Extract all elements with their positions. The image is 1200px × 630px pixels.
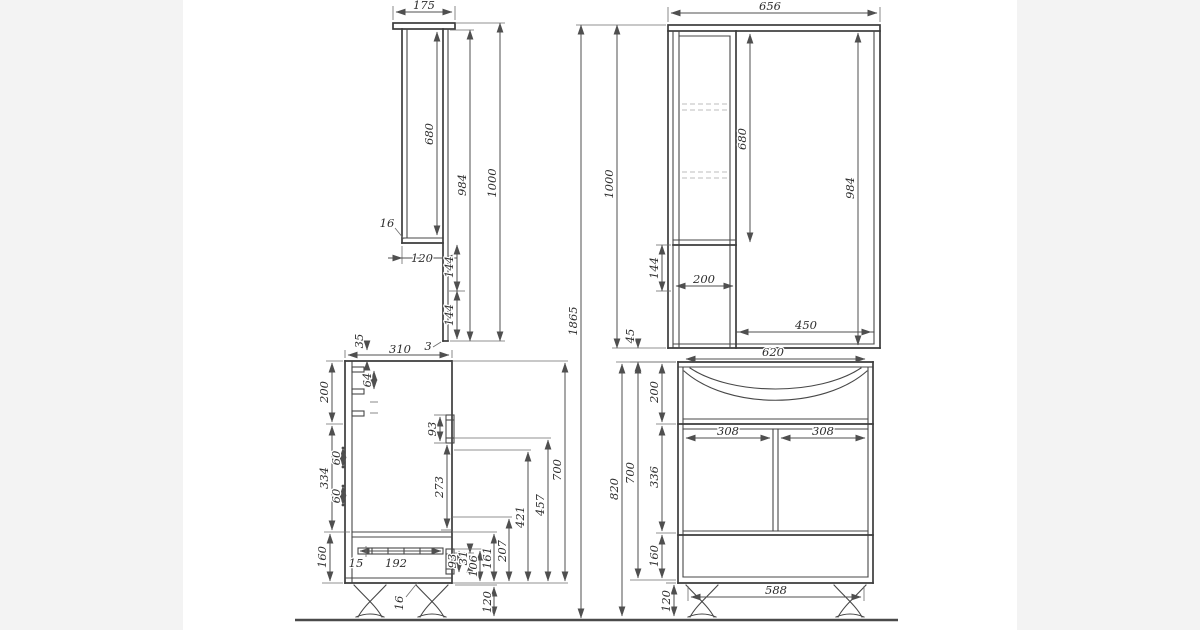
dim-label-base-side-leg-height: 120 xyxy=(480,591,494,613)
dim-label-base-side-slide-length: 192 xyxy=(385,556,407,570)
dim-label-mirror-front-cabinet-width: 200 xyxy=(692,272,715,286)
dim-label-base-side-handle-axis-b: 457 xyxy=(533,493,547,517)
dim-label-base-front-leg-height: 120 xyxy=(659,590,673,612)
dim-label-base-side-slide-offset: 15 xyxy=(349,556,364,570)
dim-label-base-side-body-height: 700 xyxy=(550,459,564,481)
dim-label-base-side-top-section: 200 xyxy=(317,381,331,404)
dim-label-base-side-detail-161: 161 xyxy=(480,547,494,569)
dim-label-mirror-side-shelf-thickness: 16 xyxy=(380,216,395,230)
dim-label-base-side-hinge-offset-a: 60 xyxy=(329,451,343,466)
dim-label-base-side-hook-spacing: 64 xyxy=(360,373,374,388)
dim-label-base-side-handle-axis-a: 421 xyxy=(513,506,527,529)
dim-label-mirror-side-total-height: 1000 xyxy=(485,168,499,197)
dim-label-base-side-drawer-section: 160 xyxy=(315,546,329,568)
dim-label-mirror-front-mounting-gap: 45 xyxy=(623,329,637,345)
dim-label-mirror-side-box-depth: 120 xyxy=(411,251,433,265)
dim-label-base-front-top-width: 620 xyxy=(762,345,784,359)
dim-label-mirror-side-top-depth: 175 xyxy=(413,0,435,12)
dim-label-base-front-drawer-section: 160 xyxy=(647,545,661,567)
dim-label-base-front-body-height: 700 xyxy=(623,462,637,484)
dim-label-base-front-door-width-right: 308 xyxy=(812,424,834,438)
dim-label-base-front-door-section: 336 xyxy=(647,466,661,488)
dim-label-mirror-side-door-opening: 680 xyxy=(422,123,436,145)
dim-label-base-side-depth: 310 xyxy=(389,342,411,356)
dim-label-base-front-leg-span: 588 xyxy=(765,583,787,597)
dim-label-mirror-front-total-height: 1000 xyxy=(602,169,616,198)
dim-label-mirror-side-offset-b: 144 xyxy=(442,304,456,326)
dim-label-base-side-hinge-offset-b: 60 xyxy=(329,489,343,504)
dim-label-mirror-side-panel-thickness: 3 xyxy=(424,339,431,353)
dim-label-base-front-door-width-left: 308 xyxy=(717,424,739,438)
dim-label-mirror-side-offset-a: 144 xyxy=(442,256,456,278)
dim-label-base-side-detail-106: 106 xyxy=(466,555,480,577)
dim-label-base-side-door-handle-height: 93 xyxy=(425,422,439,437)
dim-label-mirror-front-total-width: 656 xyxy=(759,0,781,13)
dim-label-base-side-detail-207: 207 xyxy=(495,539,509,563)
dim-label-mirror-front-mirror-width: 450 xyxy=(794,318,817,332)
dim-label-base-front-overall-height: 820 xyxy=(607,478,621,500)
dim-label-mirror-front-side-height: 984 xyxy=(843,177,857,199)
photo-margins xyxy=(0,0,1200,630)
dim-label-base-front-basin-section: 200 xyxy=(647,381,661,404)
drawing-canvas: 175 680 984 1000 16 120 144 144 3 xyxy=(0,0,1200,630)
dim-label-base-side-hook-offset: 35 xyxy=(352,334,366,349)
dim-label-mirror-front-door-height: 680 xyxy=(735,128,749,150)
dim-label-base-side-bottom-thickness: 16 xyxy=(392,596,406,611)
dim-label-mirror-side-back-panel-height: 984 xyxy=(455,174,469,196)
technical-drawing-page: 175 680 984 1000 16 120 144 144 3 xyxy=(0,0,1200,630)
dim-label-base-side-handle-to-bottom: 273 xyxy=(432,476,446,499)
dim-label-base-side-door-section: 334 xyxy=(317,467,331,489)
dim-label-mirror-front-below-door: 144 xyxy=(647,257,661,279)
dim-label-mirror-front-overall-height: 1865 xyxy=(566,306,580,335)
